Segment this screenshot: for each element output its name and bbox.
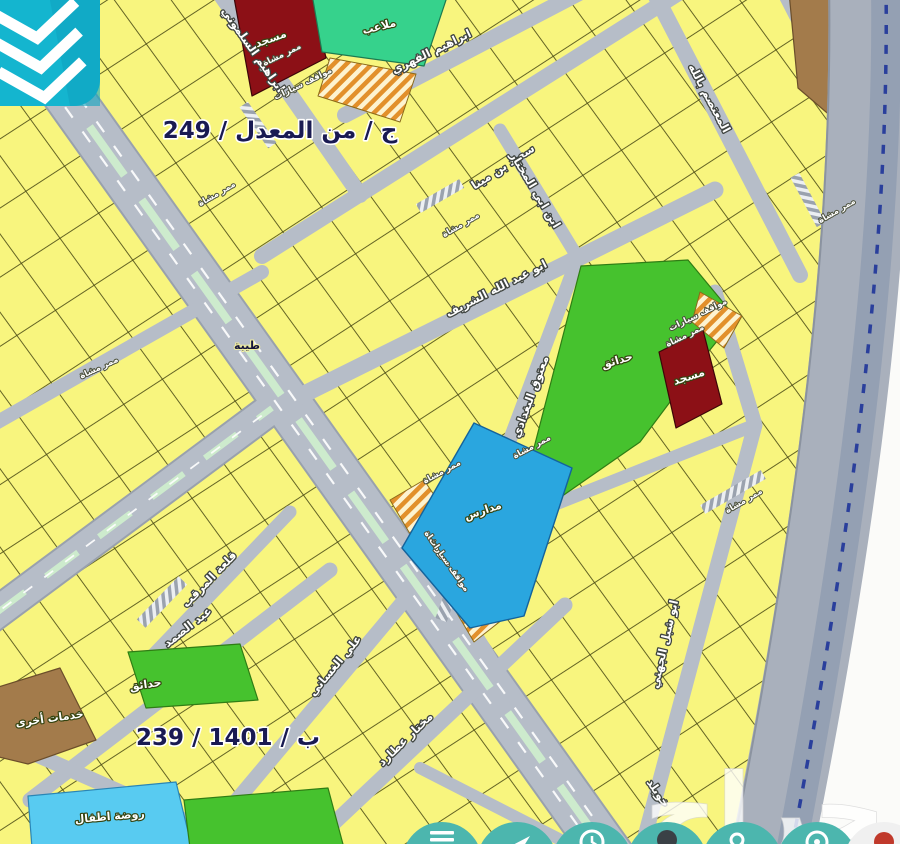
map-canvas[interactable]: ابراهيم السلموني ابراهيم الفهري سعيد بن … bbox=[0, 0, 900, 844]
plan-label-239: ب / 1401 / 239 bbox=[136, 725, 320, 751]
park-zone-southwest bbox=[128, 644, 258, 708]
map-viewport[interactable]: ابراهيم السلموني ابراهيم الفهري سعيد بن … bbox=[0, 0, 900, 844]
app-logo bbox=[0, 0, 100, 106]
street-label-taibah: طيبة bbox=[234, 339, 260, 352]
plan-label-249: ج / من المعدل / 249 bbox=[163, 118, 398, 144]
